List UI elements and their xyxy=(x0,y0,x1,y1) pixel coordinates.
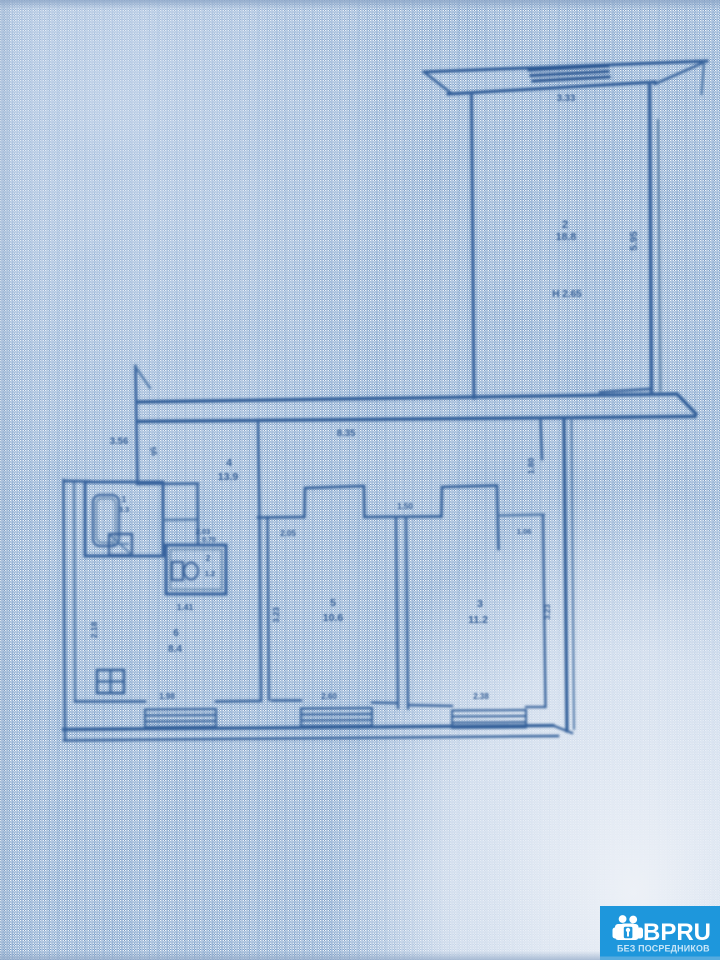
svg-text:3.23: 3.23 xyxy=(543,604,552,620)
svg-text:8.35: 8.35 xyxy=(337,428,356,439)
svg-text:БЕЗ ПОСРЕДНИКОВ: БЕЗ ПОСРЕДНИКОВ xyxy=(617,944,710,954)
svg-text:3: 3 xyxy=(477,598,483,610)
svg-text:2.38: 2.38 xyxy=(473,692,489,701)
svg-text:2.60: 2.60 xyxy=(321,692,337,701)
svg-text:2.05: 2.05 xyxy=(280,529,296,538)
svg-text:1: 1 xyxy=(122,495,127,504)
svg-text:4: 4 xyxy=(226,457,232,469)
svg-text:1.2: 1.2 xyxy=(205,569,215,578)
svg-text:6: 6 xyxy=(173,628,179,639)
svg-text:8.4: 8.4 xyxy=(168,644,182,655)
svg-text:13.9: 13.9 xyxy=(218,471,239,483)
svg-text:1.98: 1.98 xyxy=(159,692,175,701)
svg-text:1.41: 1.41 xyxy=(177,602,194,612)
svg-text:5: 5 xyxy=(330,597,336,609)
svg-text:5.95: 5.95 xyxy=(629,231,640,251)
svg-text:10.6: 10.6 xyxy=(323,612,344,624)
svg-text:2: 2 xyxy=(206,554,211,563)
svg-text:3.23: 3.23 xyxy=(272,607,281,623)
svg-text:3.3: 3.3 xyxy=(119,505,129,514)
svg-text:2.03: 2.03 xyxy=(196,527,211,536)
svg-text:1.80: 1.80 xyxy=(526,457,536,474)
svg-text:0.70: 0.70 xyxy=(202,537,216,544)
svg-text:2: 2 xyxy=(562,219,568,231)
svg-text:2.18: 2.18 xyxy=(89,621,99,638)
svg-text:H 2.65: H 2.65 xyxy=(552,289,582,300)
svg-text:BPRU: BPRU xyxy=(643,919,711,946)
svg-text:3.33: 3.33 xyxy=(557,93,576,104)
svg-text:1.50: 1.50 xyxy=(397,502,413,511)
svg-text:11.2: 11.2 xyxy=(468,614,488,626)
svg-text:3.56: 3.56 xyxy=(110,436,129,447)
svg-text:1.06: 1.06 xyxy=(517,527,532,536)
svg-text:18.8: 18.8 xyxy=(556,231,577,243)
